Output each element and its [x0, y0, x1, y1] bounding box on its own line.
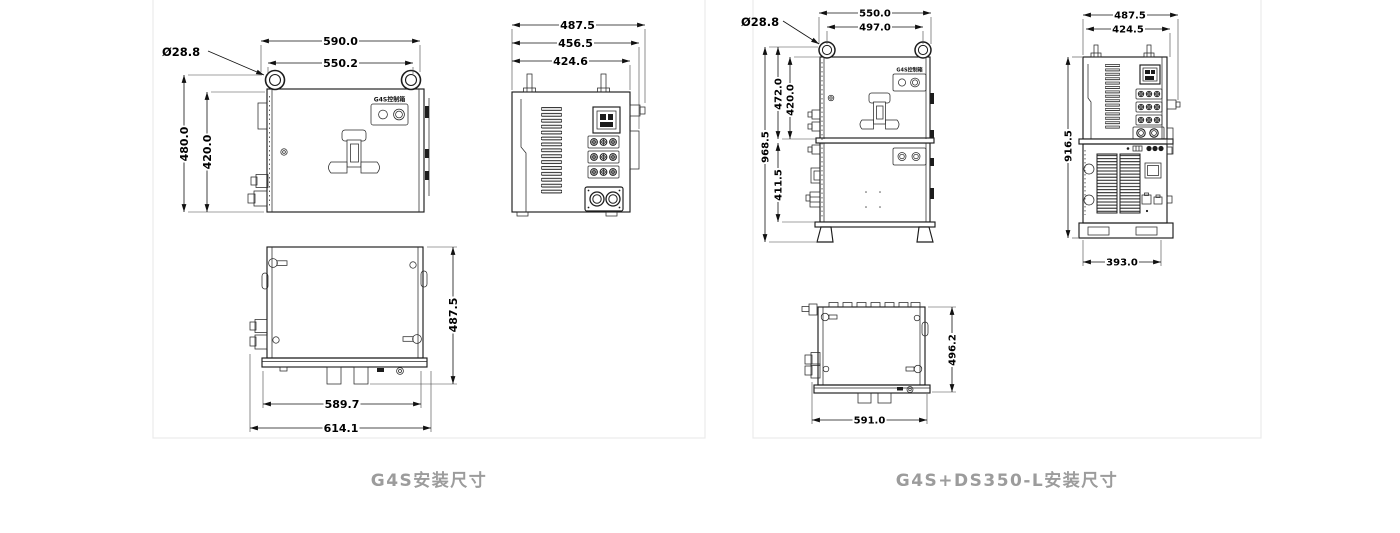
svg-text:487.5: 487.5: [1114, 11, 1146, 22]
svg-text:916.5: 916.5: [1064, 130, 1075, 162]
g4s-top-view: [250, 247, 427, 384]
cable-gland: [250, 320, 267, 350]
dim-combo-side-depth-inner: 424.5: [1086, 24, 1170, 58]
cable-gland: [248, 175, 268, 207]
svg-text:487.5: 487.5: [447, 298, 460, 333]
combo-front-view: G4S控制箱: [806, 42, 935, 242]
svg-text:393.0: 393.0: [1106, 258, 1138, 269]
svg-text:420.0: 420.0: [201, 134, 214, 169]
foot-left: [817, 227, 833, 242]
lifting-eye-right: [915, 42, 931, 58]
device-badge-label: G4S控制箱: [374, 96, 405, 104]
svg-text:496.2: 496.2: [948, 334, 959, 366]
svg-text:589.7: 589.7: [325, 398, 360, 411]
g4s-side-view: [512, 74, 645, 216]
vent-grille-left: [1097, 154, 1117, 213]
svg-text:487.5: 487.5: [560, 19, 595, 32]
dim-combo-lower-height: 411.5: [773, 143, 816, 222]
g4s-front-view: G4S控制箱: [248, 71, 429, 213]
lifting-eye-left: [819, 42, 835, 58]
svg-text:424.6: 424.6: [553, 55, 588, 68]
dim-combo-side-depth-outer: 487.5: [1083, 10, 1178, 101]
svg-text:424.5: 424.5: [1112, 25, 1144, 36]
svg-text:Ø28.8: Ø28.8: [741, 15, 779, 29]
carry-handle: [860, 93, 899, 129]
lifting-eye-right: [402, 71, 421, 90]
power-ports: [585, 187, 623, 211]
svg-text:456.5: 456.5: [558, 37, 593, 50]
svg-text:590.0: 590.0: [323, 35, 358, 48]
dim-combo-upper-height-inner: 420.0: [785, 57, 820, 139]
svg-text:591.0: 591.0: [854, 416, 886, 427]
dim-g4s-front-width-inner: 550.2: [268, 57, 413, 74]
lifting-eye-left: [266, 71, 285, 90]
dim-g4s-side-depth-inner: 424.6: [512, 55, 630, 90]
cable-glands: [802, 304, 820, 378]
g4s-panel-card: [153, 0, 705, 438]
vent-slats: [1105, 64, 1120, 130]
dim-combo-side-base-width: 393.0: [1083, 240, 1161, 269]
connector-strips: [1136, 89, 1162, 125]
dim-combo-top-depth: 496.2: [928, 307, 959, 392]
dim-g4s-front-height-outer: 480.0: [178, 75, 264, 212]
dim-g4s-eye-diameter: Ø28.8: [162, 45, 264, 75]
combo-drawing: G4S控制箱: [741, 8, 1180, 492]
svg-text:550.2: 550.2: [323, 57, 358, 70]
dim-combo-top-width: 591.0: [812, 382, 927, 427]
mount-tabs: [829, 303, 920, 308]
svg-text:420.0: 420.0: [786, 84, 797, 116]
svg-text:550.0: 550.0: [859, 9, 891, 20]
svg-text:480.0: 480.0: [178, 126, 191, 161]
device-badge-label: G4S控制箱: [896, 67, 922, 74]
connector-strips: [588, 136, 619, 178]
dim-g4s-top-width-inner: 589.7: [263, 371, 421, 411]
svg-text:411.5: 411.5: [774, 169, 785, 201]
drawings-canvas: G4S控制箱: [0, 0, 1400, 533]
dim-combo-height-total: 968.5: [760, 47, 819, 242]
svg-text:497.0: 497.0: [859, 23, 891, 34]
svg-text:614.1: 614.1: [324, 422, 359, 435]
badge-plate: [893, 74, 926, 91]
combo-side-view: [1079, 45, 1180, 238]
display-panel: [593, 107, 620, 133]
cable-glands: [806, 110, 820, 207]
combo-caption: G4S+DS350-L安装尺寸: [896, 470, 1119, 491]
foot-right: [917, 227, 933, 242]
svg-text:968.5: 968.5: [761, 131, 772, 163]
dim-g4s-top-width-outer: 614.1: [250, 354, 431, 435]
dimension-drawing-page: G4S控制箱: [0, 0, 1400, 533]
dim-g4s-front-height-inner: 420.0: [201, 92, 265, 212]
carry-handle: [329, 130, 380, 173]
g4s-drawing: G4S控制箱: [162, 19, 645, 491]
svg-text:472.0: 472.0: [774, 78, 785, 110]
combo-top-view: [802, 303, 930, 404]
g4s-caption: G4S安装尺寸: [371, 470, 488, 491]
dim-combo-front-width-inner: 497.0: [827, 22, 923, 45]
combo-panel-card: [753, 0, 1261, 438]
vent-slats: [541, 107, 562, 196]
svg-text:Ø28.8: Ø28.8: [162, 45, 200, 59]
vent-grille-right: [1120, 154, 1140, 213]
dim-combo-side-height: 916.5: [1063, 57, 1083, 238]
display-panel: [1140, 65, 1160, 84]
